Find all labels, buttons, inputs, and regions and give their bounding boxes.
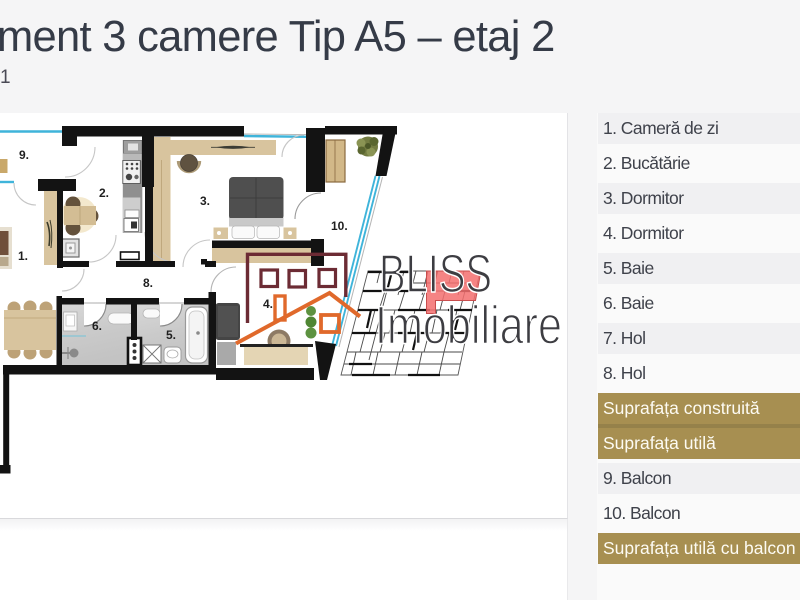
svg-text:Imobiliare: Imobiliare [375,296,562,356]
svg-text:2.: 2. [99,186,109,200]
svg-text:6.: 6. [92,319,102,333]
svg-text:10.: 10. [331,219,348,233]
svg-text:3.: 3. [200,194,210,208]
svg-text:4.: 4. [263,297,273,311]
svg-text:5.: 5. [166,328,176,342]
svg-text:8.: 8. [143,276,153,290]
svg-text:9.: 9. [19,148,29,162]
svg-text:1.: 1. [18,249,28,263]
